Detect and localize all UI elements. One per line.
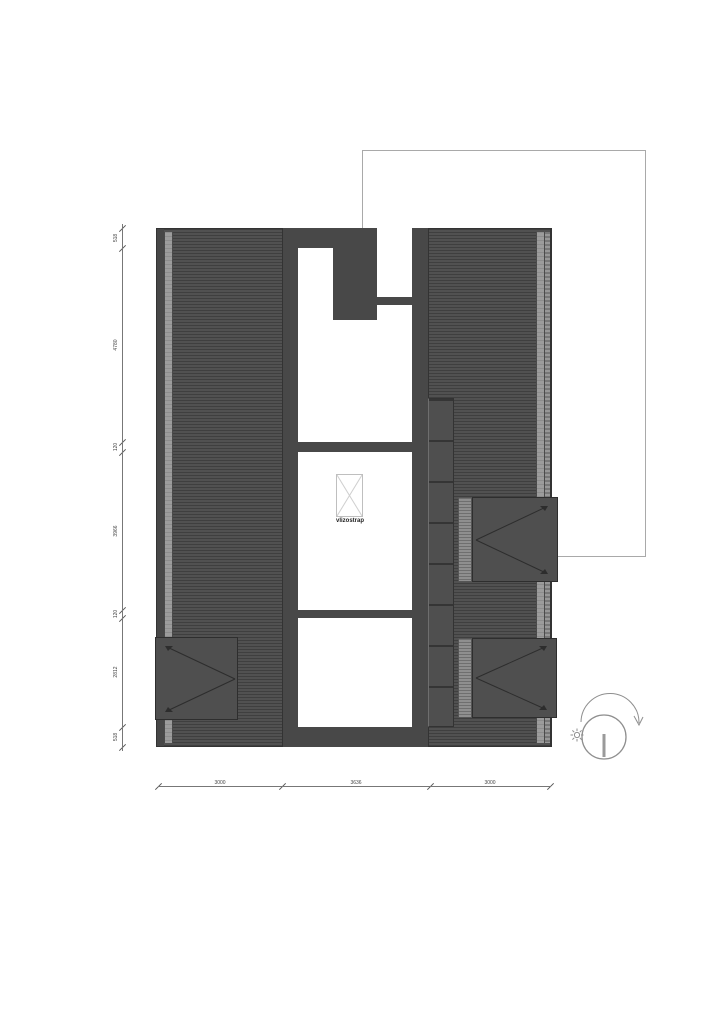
slope-direction-arrows-icon	[473, 498, 557, 581]
corridor-wall-right	[412, 228, 428, 747]
dimension-line-left	[122, 224, 123, 751]
panel-column	[428, 398, 454, 727]
drawing-canvas: vlizostrap	[0, 0, 724, 1024]
dimension-line-bottom	[158, 786, 551, 787]
dormer-mid-side-hatch	[458, 497, 472, 582]
dim-label-left-4: 120	[112, 594, 120, 634]
dim-label-left-5: 2812	[112, 652, 120, 692]
loft-hatch-cross-icon	[336, 474, 363, 517]
top-wall-column	[333, 228, 377, 320]
dim-label-left-0: 518	[112, 218, 120, 258]
dim-label-left-1: 4780	[112, 325, 120, 365]
slope-direction-arrows-icon	[156, 638, 237, 719]
floor-plan: vlizostrap	[156, 228, 552, 747]
bottom-wall-band	[283, 727, 428, 747]
corridor-wall-left	[283, 228, 298, 747]
dim-label-left-2: 120	[112, 427, 120, 467]
sun-icon	[571, 729, 584, 742]
slope-direction-arrows-icon	[473, 639, 556, 717]
divider-wall-1	[298, 442, 412, 452]
sun-path-arc-icon	[560, 692, 660, 768]
dormer-left	[155, 637, 238, 720]
dim-label-left-3: 3966	[112, 511, 120, 551]
divider-wall-2	[298, 610, 412, 618]
dormer-right-bottom	[472, 638, 557, 718]
upper-cross-wall	[377, 297, 412, 305]
dormer-right-middle	[472, 497, 558, 582]
loft-hatch-label: vlizostrap	[290, 518, 410, 524]
dormer-bot-side-hatch	[458, 638, 472, 718]
dim-label-left-6: 518	[112, 717, 120, 757]
